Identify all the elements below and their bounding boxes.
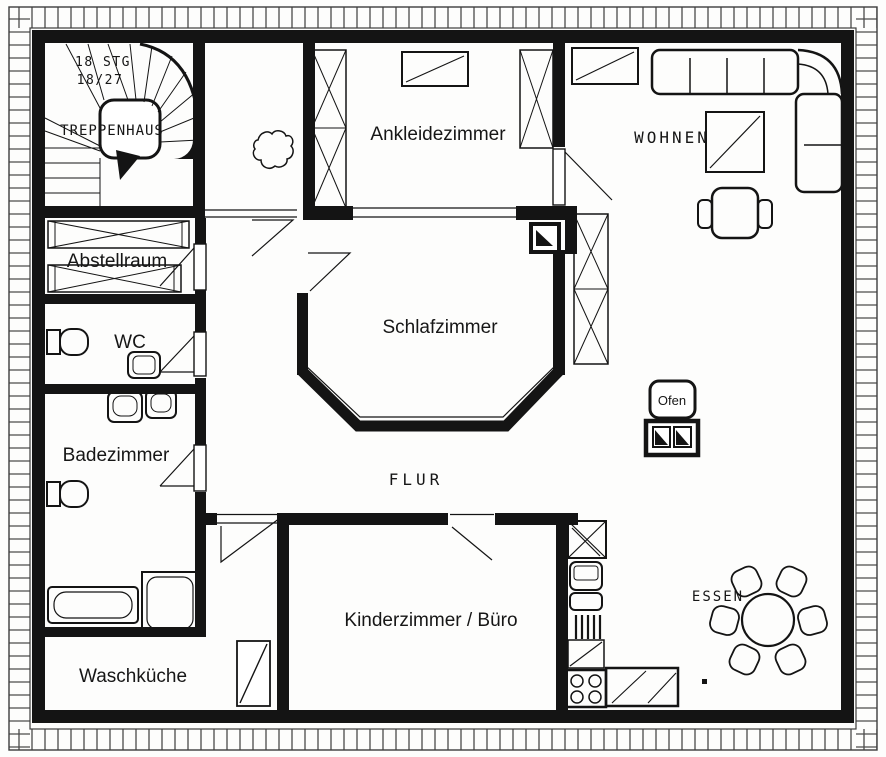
oven-label: Ofen [658, 393, 686, 408]
radiator-icon [576, 615, 600, 639]
dining-table-icon [742, 594, 794, 646]
room-label-treppenhaus: TREPPENHAUS [60, 123, 164, 139]
chimney-icon [531, 224, 559, 252]
armchair-icon [712, 188, 758, 238]
room-labels: 18 STG 18/27 TREPPENHAUS Ankleidezimmer … [60, 55, 744, 687]
decor-symbol [253, 131, 293, 168]
bathroom-fixtures [47, 390, 198, 634]
room-label-kinderzimmer: Kinderzimmer / Büro [344, 610, 517, 631]
room-label-wohnen: WOHNEN [634, 128, 710, 147]
dining-set [708, 564, 829, 678]
counter-icon [606, 668, 678, 706]
room-label-essen: ESSEN [692, 589, 744, 605]
kitchen-units [566, 521, 707, 707]
room-label-ankleidezimmer: Ankleidezimmer [370, 124, 506, 145]
room-label-wc: WC [114, 332, 146, 353]
wohnen-furniture [531, 48, 842, 455]
stair-note-line1: 18 STG [75, 55, 131, 70]
stair-note-line2: 18/27 [77, 73, 124, 88]
room-label-badezimmer: Badezimmer [63, 445, 170, 466]
room-label-flur: FLUR [389, 470, 444, 489]
corner-sofa-icon [652, 50, 842, 192]
chair-icon [774, 564, 810, 600]
floorplan-canvas: 18 STG 18/27 TREPPENHAUS Ankleidezimmer … [0, 0, 886, 757]
chair-icon [708, 604, 741, 637]
chair-icon [727, 642, 763, 678]
floorplan-drawing: 18 STG 18/27 TREPPENHAUS Ankleidezimmer … [0, 0, 886, 757]
stove-icon [566, 670, 606, 707]
room-label-schlafzimmer: Schlafzimmer [382, 317, 498, 338]
room-label-abstellraum: Abstellraum [67, 251, 167, 272]
chair-icon [796, 604, 829, 637]
chair-icon [773, 642, 809, 678]
room-label-waschkueche: Waschküche [79, 666, 187, 687]
